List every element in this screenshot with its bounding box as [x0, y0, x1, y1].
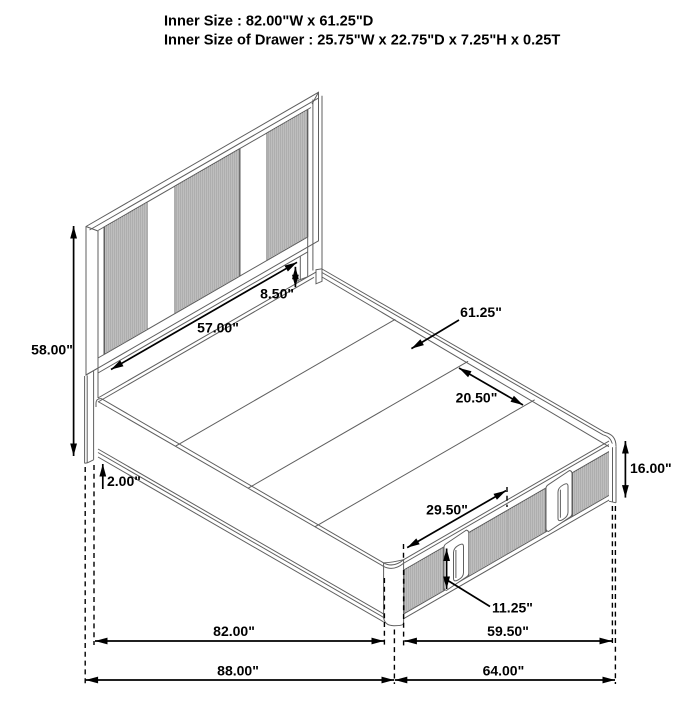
- svg-text:88.00": 88.00": [217, 663, 259, 679]
- svg-text:Inner Size of Drawer : 25.75"W: Inner Size of Drawer : 25.75"W x 22.75"D…: [164, 33, 560, 49]
- svg-text:11.25": 11.25": [492, 600, 533, 616]
- svg-text:Inner Size : 82.00"W x 61.25"D: Inner Size : 82.00"W x 61.25"D: [164, 14, 373, 30]
- svg-text:2.00": 2.00": [107, 473, 141, 489]
- svg-text:59.50": 59.50": [487, 623, 529, 639]
- svg-text:64.00": 64.00": [483, 663, 525, 679]
- svg-text:20.50": 20.50": [456, 390, 498, 406]
- svg-text:29.50": 29.50": [426, 502, 468, 518]
- svg-text:8.50": 8.50": [260, 286, 294, 302]
- svg-text:82.00": 82.00": [213, 623, 255, 639]
- svg-text:57.00": 57.00": [197, 320, 239, 336]
- svg-text:58.00": 58.00": [31, 342, 73, 358]
- svg-text:61.25": 61.25": [460, 304, 502, 320]
- svg-text:16.00": 16.00": [630, 460, 672, 476]
